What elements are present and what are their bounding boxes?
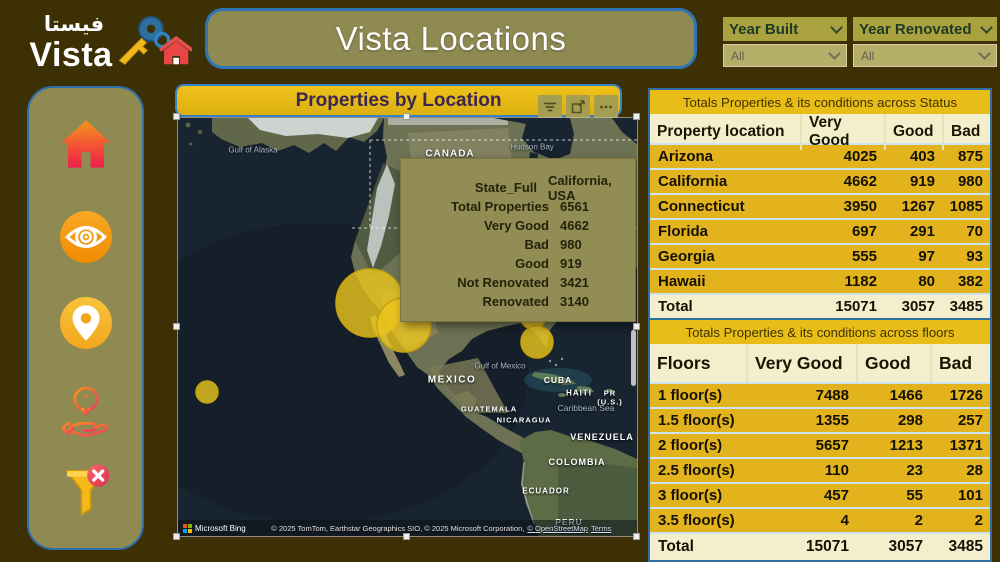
map-bubble[interactable]: [196, 381, 218, 403]
tooltip-label: Bad: [401, 237, 549, 252]
slicer-year-built: Year Built All: [723, 17, 847, 67]
cell-floors: 3.5 floor(s): [650, 509, 746, 532]
tooltip-label: Not Renovated: [401, 275, 549, 290]
selection-handle[interactable]: [173, 323, 180, 330]
cell-location: Florida: [650, 220, 800, 243]
selection-handle[interactable]: [173, 113, 180, 120]
cell-total-bad: 3485: [930, 534, 990, 560]
cell-good: 1466: [856, 384, 930, 407]
cell-very-good: 1182: [800, 270, 884, 293]
bing-logo: Microsoft Bing: [183, 524, 246, 533]
dashboard-canvas: فيستا Vista Vista Locations Year Built A…: [0, 0, 1000, 562]
floors-table-header: Floors Very Good Good Bad: [650, 344, 990, 382]
cell-very-good: 3950: [800, 195, 884, 218]
status-table-title: Totals Properties & its conditions acros…: [650, 90, 990, 114]
chevron-down-icon: [828, 47, 841, 60]
tooltip-value: 6561: [560, 199, 589, 214]
cell-bad: 101: [930, 484, 990, 507]
cell-floors: 3 floor(s): [650, 484, 746, 507]
map-label-country: GUATEMALA: [461, 406, 517, 415]
map-label-country: ECUADOR: [522, 486, 569, 495]
chevron-down-icon: [830, 21, 843, 34]
selection-handle[interactable]: [633, 113, 640, 120]
cell-good: 2: [856, 509, 930, 532]
cell-very-good: 1355: [746, 409, 856, 432]
cell-good: 298: [856, 409, 930, 432]
cell-bad: 257: [930, 409, 990, 432]
map-tooltip: State_FullCalifornia, USA Total Properti…: [400, 158, 636, 322]
copyright-text: © 2025 TomTom, Earthstar Geographics SIO…: [271, 524, 524, 533]
selection-handle[interactable]: [403, 533, 410, 540]
slicer-year-renovated-header[interactable]: Year Renovated: [853, 17, 997, 41]
selection-handle[interactable]: [633, 533, 640, 540]
bing-brand-text: Microsoft Bing: [195, 524, 246, 533]
column-header[interactable]: Bad: [930, 344, 990, 382]
table-total-row: Total1507130573485: [650, 293, 990, 318]
map-label-country: VENEZUELA: [570, 432, 634, 442]
tooltip-value: 980: [560, 237, 582, 252]
cell-location: Arizona: [650, 145, 800, 168]
cell-good: 80: [884, 270, 942, 293]
page-title-text: Vista Locations: [336, 20, 567, 58]
tooltip-row: Not Renovated3421: [401, 273, 635, 292]
terms-link[interactable]: Terms: [591, 524, 611, 533]
logo-arabic-text: فيستا: [28, 12, 120, 36]
cell-very-good: 457: [746, 484, 856, 507]
map-label-country: NICARAGUA: [497, 417, 552, 426]
tooltip-value: 3140: [560, 294, 589, 309]
cell-good: 291: [884, 220, 942, 243]
tooltip-value: California, USA: [548, 173, 635, 203]
cell-bad: 70: [942, 220, 990, 243]
tooltip-value: 3421: [560, 275, 589, 290]
cell-good: 919: [884, 170, 942, 193]
map-scrollbar[interactable]: [631, 330, 636, 386]
slicer-year-renovated-value: All: [861, 49, 980, 63]
cell-very-good: 555: [800, 245, 884, 268]
cell-bad: 1085: [942, 195, 990, 218]
table-row: 3 floor(s)45755101: [650, 482, 990, 507]
eye-icon[interactable]: [59, 210, 113, 264]
cell-location: Georgia: [650, 245, 800, 268]
cell-bad: 93: [942, 245, 990, 268]
table-row: 2 floor(s)565712131371: [650, 432, 990, 457]
cell-location: Hawaii: [650, 270, 800, 293]
cell-bad: 1371: [930, 434, 990, 457]
map-label-country: COLOMBIA: [549, 457, 606, 467]
slicer-year-built-value: All: [731, 49, 830, 63]
cell-good: 23: [856, 459, 930, 482]
map-label-sea: Caribbean Sea: [558, 404, 615, 414]
map-label-sea: Gulf of Mexico: [472, 361, 528, 370]
home-icon[interactable]: [59, 116, 113, 172]
tooltip-value: 919: [560, 256, 582, 271]
floors-table-title: Totals Properties & its conditions acros…: [650, 320, 990, 344]
cell-total-very-good: 15071: [800, 295, 884, 318]
cell-very-good: 697: [800, 220, 884, 243]
tooltip-label: Total Properties: [401, 199, 549, 214]
cell-floors: 2 floor(s): [650, 434, 746, 457]
cell-good: 97: [884, 245, 942, 268]
column-header[interactable]: Floors: [650, 344, 746, 382]
column-header[interactable]: Good: [856, 344, 930, 382]
cell-very-good: 7488: [746, 384, 856, 407]
map-canvas[interactable]: Gulf of Alaska Hudson Bay CANADA MEXICO …: [178, 118, 637, 536]
table-row: Hawaii118280382: [650, 268, 990, 293]
map-title-text: Properties by Location: [296, 90, 502, 112]
key-house-icon: [110, 6, 192, 76]
selection-handle[interactable]: [173, 533, 180, 540]
more-options-icon[interactable]: [594, 95, 618, 119]
chevron-down-icon: [978, 47, 991, 60]
cell-good: 1267: [884, 195, 942, 218]
map-label-country: CUBA: [544, 376, 573, 386]
slicer-year-renovated-label: Year Renovated: [859, 21, 982, 38]
openstreetmap-link[interactable]: © OpenStreetMap: [527, 524, 588, 533]
tooltip-row: Good919: [401, 254, 635, 273]
table-row: 2.5 floor(s)1102328: [650, 457, 990, 482]
tooltip-label: Very Good: [401, 218, 549, 233]
location-pin-icon[interactable]: [59, 296, 113, 350]
slicer-year-built-header[interactable]: Year Built: [723, 17, 847, 41]
cell-very-good: 5657: [746, 434, 856, 457]
chevron-down-icon: [980, 21, 993, 34]
tooltip-row: Renovated3140: [401, 292, 635, 311]
cell-bad: 382: [942, 270, 990, 293]
cell-very-good: 110: [746, 459, 856, 482]
clear-filter-icon[interactable]: [58, 460, 114, 520]
cell-very-good: 4025: [800, 145, 884, 168]
status-table-header: Property location Very Good Good Bad: [650, 114, 990, 143]
cell-total-good: 3057: [856, 534, 930, 560]
sidebar: [27, 86, 144, 550]
table-row: 1 floor(s)748814661726: [650, 382, 990, 407]
cell-location: Connecticut: [650, 195, 800, 218]
table-total-row: Total1507130573485: [650, 532, 990, 560]
slicer-year-built-label: Year Built: [729, 21, 832, 38]
table-row: California4662919980: [650, 168, 990, 193]
tooltip-label: Renovated: [401, 294, 549, 309]
tooltip-label: Good: [401, 256, 549, 271]
tooltip-row: Very Good4662: [401, 216, 635, 235]
map-label-sea: Gulf of Alaska: [221, 145, 285, 154]
cell-total-label: Total: [650, 534, 746, 560]
map-label-country: HAITI: [566, 388, 592, 397]
microsoft-logo-icon: [183, 524, 192, 533]
tooltip-label: State_Full: [401, 180, 537, 195]
selection-handle[interactable]: [403, 113, 410, 120]
slicer-year-built-dropdown[interactable]: All: [723, 44, 847, 67]
cell-bad: 28: [930, 459, 990, 482]
cell-good: 1213: [856, 434, 930, 457]
info-hand-icon[interactable]: [58, 384, 114, 442]
cell-bad: 875: [942, 145, 990, 168]
cell-total-label: Total: [650, 295, 800, 318]
status-table-panel: Totals Properties & its conditions acros…: [648, 88, 992, 320]
column-header[interactable]: Very Good: [746, 344, 856, 382]
map-label-sea: Hudson Bay: [510, 142, 554, 151]
cell-location: California: [650, 170, 800, 193]
table-row: 3.5 floor(s)422: [650, 507, 990, 532]
table-row: Georgia5559793: [650, 243, 990, 268]
cell-bad: 1726: [930, 384, 990, 407]
tooltip-row: Bad980: [401, 235, 635, 254]
attribution-text: © 2025 TomTom, Earthstar Geographics SIO…: [246, 524, 637, 533]
cell-very-good: 4: [746, 509, 856, 532]
floors-table-panel: Totals Properties & its conditions acros…: [648, 318, 992, 562]
cell-bad: 980: [942, 170, 990, 193]
table-row: Florida69729170: [650, 218, 990, 243]
tooltip-row: State_FullCalifornia, USA: [401, 178, 635, 197]
slicer-year-renovated-dropdown[interactable]: All: [853, 44, 997, 67]
selection-handle[interactable]: [633, 323, 640, 330]
map-label-country: MEXICO: [428, 374, 476, 386]
table-row: Arizona4025403875: [650, 143, 990, 168]
cell-very-good: 4662: [800, 170, 884, 193]
table-row: Connecticut395012671085: [650, 193, 990, 218]
cell-floors: 1.5 floor(s): [650, 409, 746, 432]
table-row: 1.5 floor(s)1355298257: [650, 407, 990, 432]
map-bubble[interactable]: [521, 326, 553, 358]
cell-good: 403: [884, 145, 942, 168]
cell-total-good: 3057: [884, 295, 942, 318]
tooltip-value: 4662: [560, 218, 589, 233]
cell-bad: 2: [930, 509, 990, 532]
filter-icon[interactable]: [538, 95, 562, 119]
cell-total-very-good: 15071: [746, 534, 856, 560]
cell-floors: 2.5 floor(s): [650, 459, 746, 482]
slicer-year-renovated: Year Renovated All: [853, 17, 997, 67]
focus-mode-icon[interactable]: [566, 95, 590, 119]
cell-total-bad: 3485: [942, 295, 990, 318]
page-title: Vista Locations: [205, 8, 697, 69]
cell-floors: 1 floor(s): [650, 384, 746, 407]
cell-good: 55: [856, 484, 930, 507]
